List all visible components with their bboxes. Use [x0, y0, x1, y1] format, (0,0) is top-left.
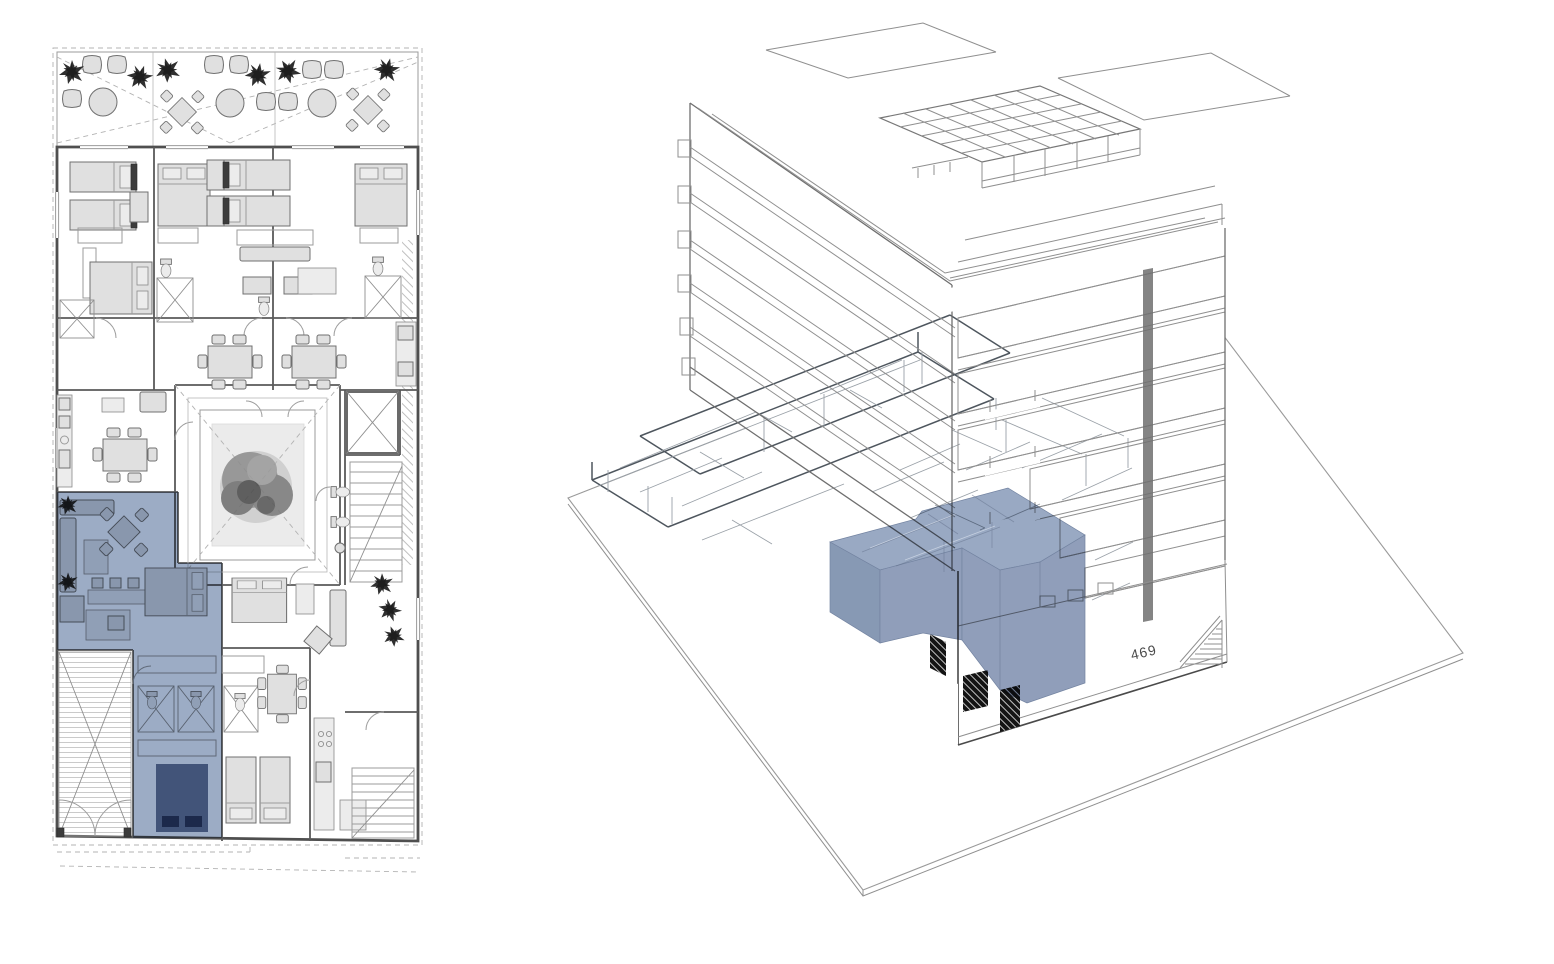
- building-axonometric: 469: [568, 17, 1463, 896]
- drawing: 469: [0, 0, 1554, 964]
- bedrooms-top: [60, 160, 407, 338]
- selected-unit-bed: [156, 764, 208, 832]
- stair-mid: [316, 462, 402, 582]
- elevator: [347, 392, 398, 453]
- facade-dark-stripe: [1143, 268, 1153, 622]
- canvas: 469: [0, 0, 1554, 964]
- courtyard: [175, 385, 340, 585]
- front-terrace: [57, 52, 418, 147]
- entry-opening: [963, 670, 988, 712]
- patio-garage: [57, 652, 131, 837]
- ground-floor-plan: [53, 48, 422, 872]
- kitchen-bottom-right: [314, 712, 384, 830]
